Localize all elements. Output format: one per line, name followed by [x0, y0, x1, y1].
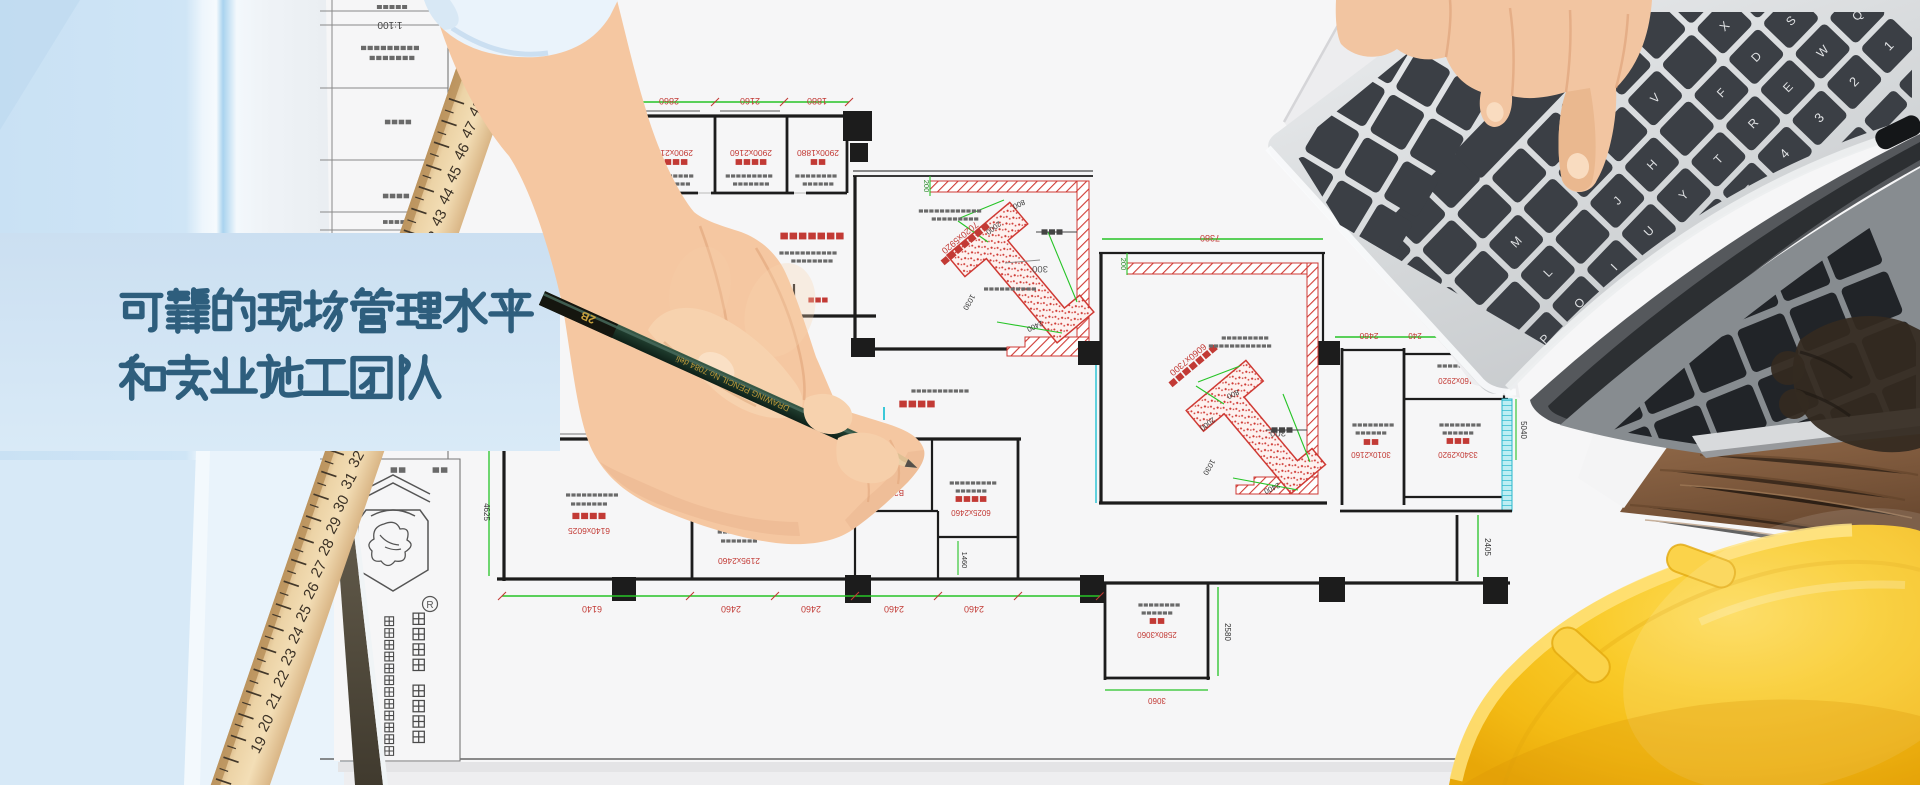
svg-text:240: 240	[1408, 331, 1422, 340]
svg-text:2195x2460: 2195x2460	[718, 556, 760, 566]
svg-text:200: 200	[1119, 258, 1128, 271]
svg-text:3010x2160: 3010x2160	[1351, 450, 1391, 459]
svg-text:2580: 2580	[1223, 623, 1232, 641]
svg-text:3340x2920: 3340x2920	[1438, 450, 1478, 459]
svg-text:2160: 2160	[740, 96, 760, 106]
svg-text:1880: 1880	[807, 96, 827, 106]
svg-text:2460: 2460	[1359, 331, 1378, 341]
svg-text:6140: 6140	[582, 604, 602, 614]
svg-text:2900x1880: 2900x1880	[797, 148, 839, 158]
svg-text:1460: 1460	[960, 552, 969, 569]
svg-text:2900x2160: 2900x2160	[730, 148, 772, 158]
svg-text:5040: 5040	[1519, 421, 1528, 439]
svg-text:3060: 3060	[1148, 696, 1166, 705]
svg-text:200: 200	[922, 180, 931, 193]
svg-text:R: R	[426, 600, 433, 611]
svg-text:1:100: 1:100	[377, 19, 402, 30]
svg-text:2580x3060: 2580x3060	[1137, 630, 1177, 639]
svg-text:7380: 7380	[1200, 233, 1220, 243]
svg-text:2460: 2460	[884, 604, 904, 614]
svg-text:2405: 2405	[1483, 538, 1492, 556]
svg-text:4625: 4625	[482, 503, 491, 521]
svg-text:6025x2460: 6025x2460	[951, 508, 991, 517]
svg-text:2460: 2460	[964, 604, 984, 614]
svg-text:2860: 2860	[659, 96, 679, 106]
svg-text:6140x6025: 6140x6025	[568, 526, 610, 536]
svg-text:300: 300	[1032, 263, 1048, 274]
svg-text:2460: 2460	[801, 604, 821, 614]
svg-text:2460: 2460	[721, 604, 741, 614]
